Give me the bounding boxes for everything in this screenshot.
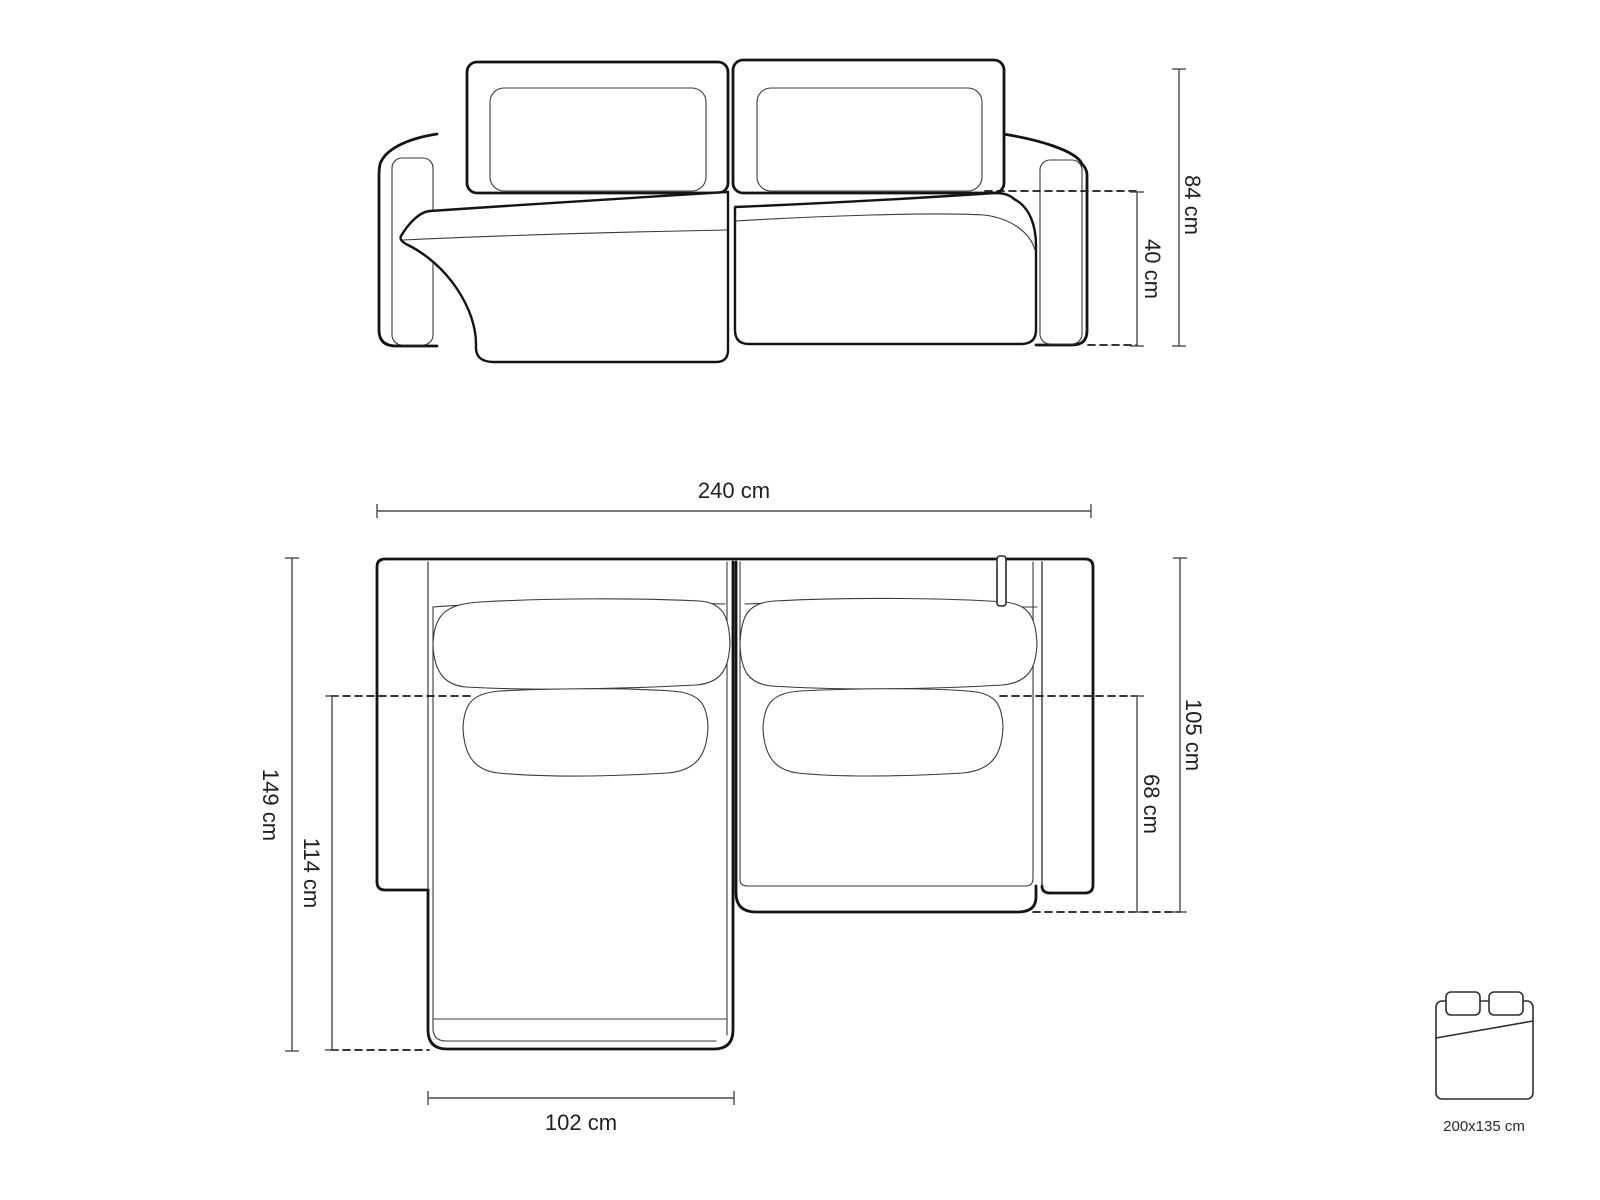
top-seat-cushion-left bbox=[463, 689, 708, 776]
dim-total-width-label: 240 cm bbox=[698, 478, 770, 503]
bed-icon-pillow-left bbox=[1446, 992, 1480, 1015]
top-headrest-strap bbox=[997, 556, 1006, 606]
top-seat-cushion-right bbox=[763, 689, 1003, 776]
dim-body-depth-label: 105 cm bbox=[1181, 699, 1206, 771]
front-back-cushion-left bbox=[490, 88, 706, 191]
front-seat-left bbox=[401, 192, 728, 362]
sofa-dimension-diagram: 84 cm 40 cm bbox=[0, 0, 1600, 1200]
dim-total-depth bbox=[285, 558, 299, 1051]
dim-chaise-width-label: 102 cm bbox=[545, 1110, 617, 1135]
bed-size-label: 200x135 cm bbox=[1443, 1118, 1525, 1135]
front-back-cushion-right bbox=[757, 88, 982, 191]
diagram-canvas: 84 cm 40 cm bbox=[0, 0, 1600, 1200]
top-right-inner-left bbox=[740, 562, 748, 886]
front-view bbox=[379, 60, 1137, 362]
top-left-arm-bottom bbox=[377, 882, 428, 890]
dim-chaise-width bbox=[428, 1091, 734, 1105]
bed-icon-pillow-right bbox=[1489, 992, 1523, 1015]
bed-icon bbox=[1436, 992, 1533, 1099]
front-right-arm-inner bbox=[1040, 160, 1082, 344]
dim-total-height-label: 84 cm bbox=[1180, 175, 1205, 235]
dim-seat-depth-label: 68 cm bbox=[1139, 774, 1164, 834]
dim-chaise-depth bbox=[325, 696, 339, 1050]
top-view bbox=[331, 556, 1180, 1050]
top-back-cushion-right bbox=[740, 598, 1037, 688]
top-back-cushion-left bbox=[433, 599, 730, 689]
dim-chaise-depth-label: 114 cm bbox=[299, 838, 324, 909]
dim-seat-height-label: 40 cm bbox=[1140, 239, 1165, 299]
dim-total-width bbox=[377, 504, 1091, 518]
dim-total-depth-label: 149 cm bbox=[258, 769, 283, 841]
